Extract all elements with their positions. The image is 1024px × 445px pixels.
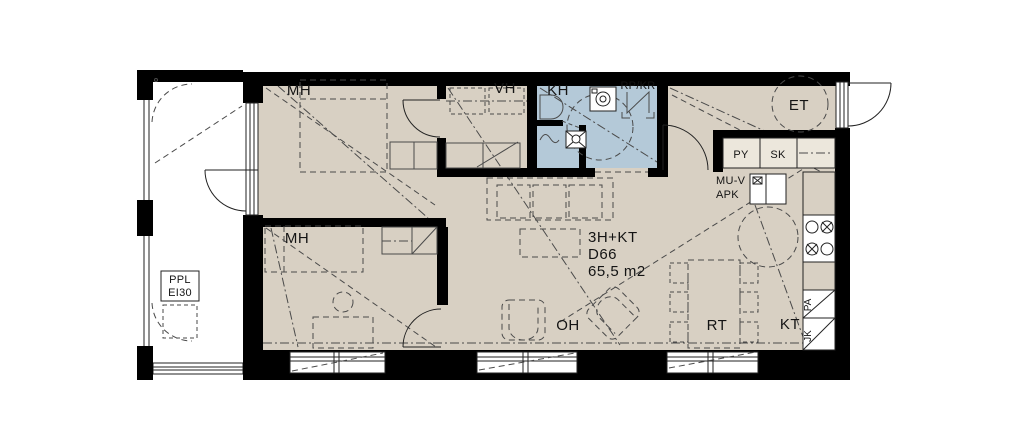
fixture-label-mu-v: MU-V	[716, 175, 746, 187]
fire-rating-ppl: PPL	[169, 274, 191, 286]
unit-layout: 3H+KT	[588, 229, 638, 246]
left-wall-lower	[243, 215, 263, 350]
balcony-railing	[153, 363, 243, 374]
wc-nook-wall-h	[537, 120, 563, 126]
balcony-window-swing	[152, 303, 192, 341]
window-2	[477, 352, 577, 373]
balcony-mullion	[137, 200, 153, 236]
stove	[803, 215, 835, 262]
entry-door	[836, 82, 891, 128]
unit-id: D66	[588, 246, 617, 263]
balcony-mullion	[137, 70, 153, 100]
room-label-oh: OH	[556, 317, 580, 334]
room-label-mh1: MH	[287, 82, 311, 99]
fixture-label-rp-kr: RP/KR	[620, 80, 655, 92]
fridge: JK	[803, 318, 835, 350]
room-label-vh: VH	[494, 80, 516, 97]
windows	[290, 352, 758, 373]
balcony-window-swing	[152, 84, 192, 122]
hall-closet-stub	[713, 130, 723, 172]
fixture-label-py: PY	[733, 149, 749, 161]
mh2-right-wall	[437, 227, 448, 305]
window-1	[290, 352, 385, 373]
floor-plan: PPL EI30	[0, 0, 1024, 445]
fixture-label-pa: PA	[803, 298, 814, 311]
room-label-et: ET	[789, 97, 809, 114]
room-label-mh2: MH	[285, 230, 309, 247]
toilet	[566, 131, 586, 148]
balcony-mullion	[137, 346, 153, 380]
kh-bottom-wall-a	[537, 168, 595, 177]
balcony: PPL EI30	[137, 70, 243, 380]
room-label-kh: KH	[547, 82, 569, 99]
kh-bottom-wall-b	[648, 168, 668, 177]
right-wall-lower	[835, 128, 850, 352]
fixture-label-apk: APK	[716, 189, 739, 201]
right-wall-upper	[835, 72, 850, 82]
sink-unit	[750, 174, 786, 204]
left-wall-upper	[243, 72, 263, 103]
fixture-label-jk: JK	[803, 330, 814, 342]
washing-machine	[590, 87, 616, 111]
room-label-kt: KT	[780, 316, 800, 333]
floor-plan-drawing: PPL EI30	[0, 0, 1024, 445]
mh1-right-wall-a	[437, 72, 446, 99]
fire-rating-ei30: EI30	[168, 287, 192, 299]
balcony-door	[205, 103, 258, 215]
room-label-rt: RT	[707, 317, 728, 334]
unit-area: 65,5 m2	[588, 263, 646, 280]
balcony-door-swing-dash	[155, 106, 242, 163]
fixture-label-sk: SK	[770, 149, 786, 161]
vh-bottom-wall	[443, 168, 537, 177]
window-3	[667, 352, 758, 373]
oven: PA	[803, 290, 835, 318]
hall-closet-wall	[713, 130, 835, 138]
vh-kh-wall	[527, 72, 537, 168]
